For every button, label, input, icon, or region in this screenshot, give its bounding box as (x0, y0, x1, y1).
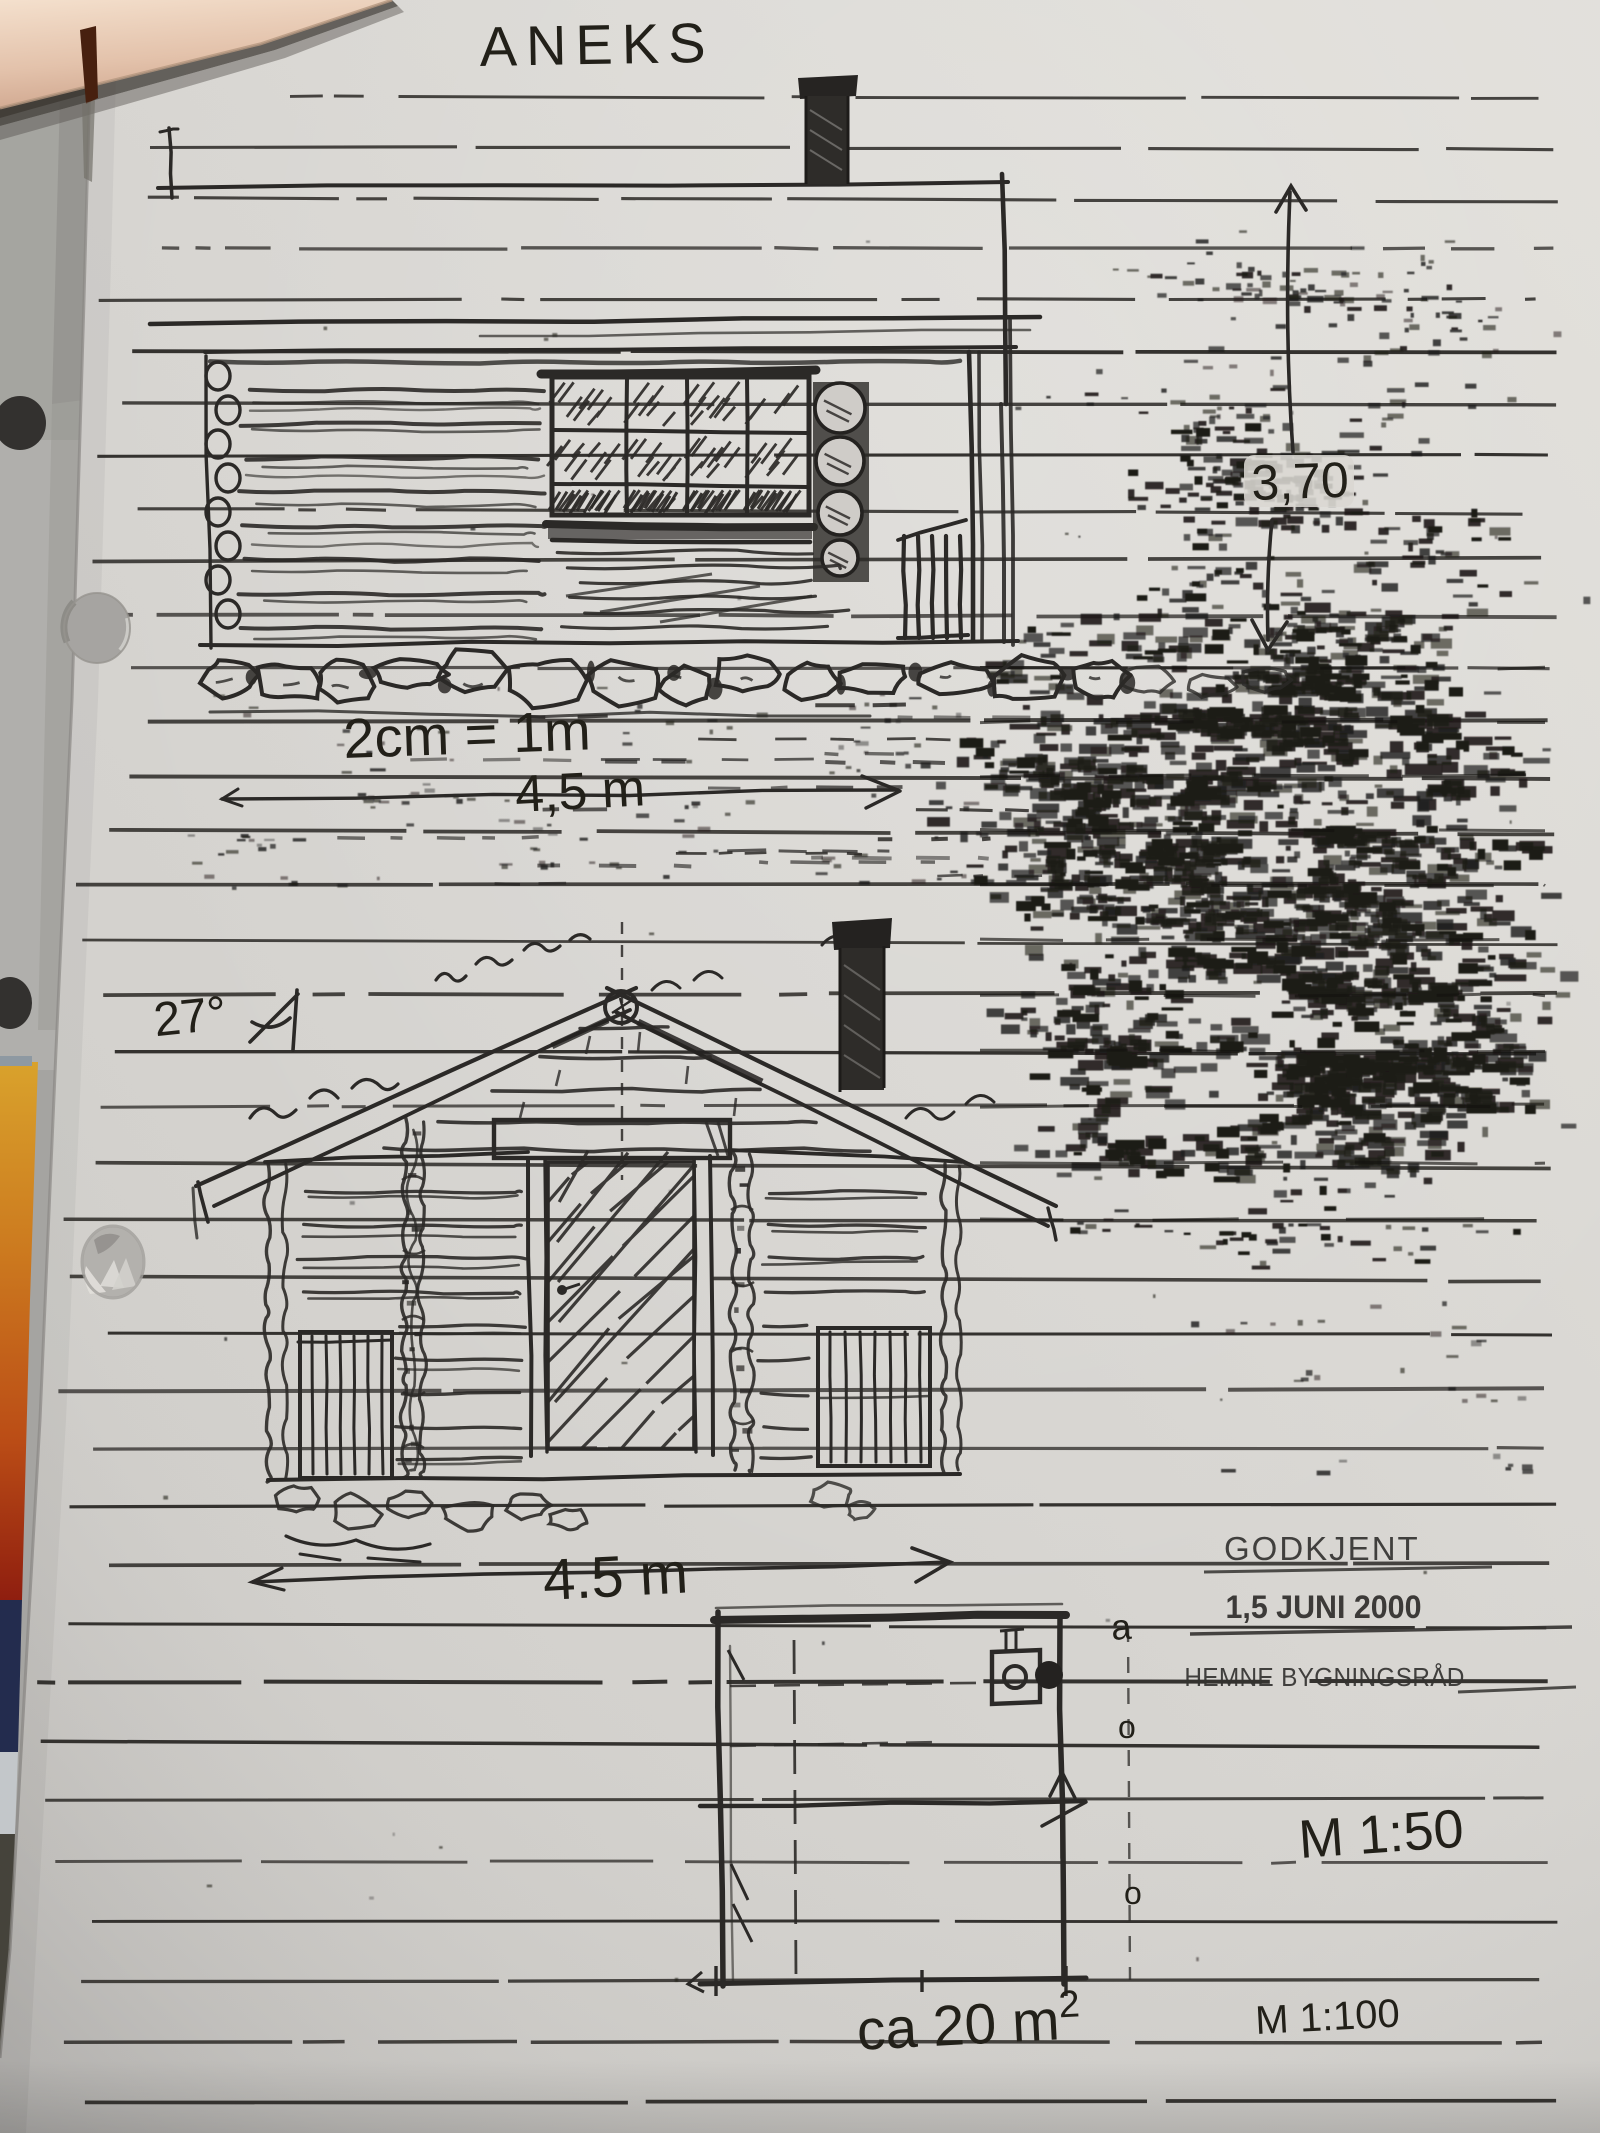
svg-text:o: o (1124, 1875, 1142, 1911)
svg-text:o: o (1118, 1709, 1136, 1745)
svg-text:2cm = 1m: 2cm = 1m (342, 698, 591, 770)
svg-text:M 1:100: M 1:100 (1254, 1991, 1401, 2043)
svg-text:M 1:50: M 1:50 (1297, 1799, 1466, 1870)
svg-text:HEMNE BYGNINGSRÅD: HEMNE BYGNINGSRÅD (1184, 1661, 1464, 1692)
svg-text:GODKJENT: GODKJENT (1224, 1530, 1420, 1567)
svg-text:1,5 JUNI 2000: 1,5 JUNI 2000 (1226, 1589, 1422, 1625)
svg-text:a: a (1110, 1606, 1134, 1648)
svg-text:ANEKS: ANEKS (479, 11, 715, 78)
svg-text:4.5 m: 4.5 m (541, 1540, 689, 1613)
svg-text:27°: 27° (151, 987, 229, 1047)
svg-text:4,5 m: 4,5 m (514, 759, 647, 824)
svg-text:3,70: 3,70 (1250, 452, 1349, 511)
